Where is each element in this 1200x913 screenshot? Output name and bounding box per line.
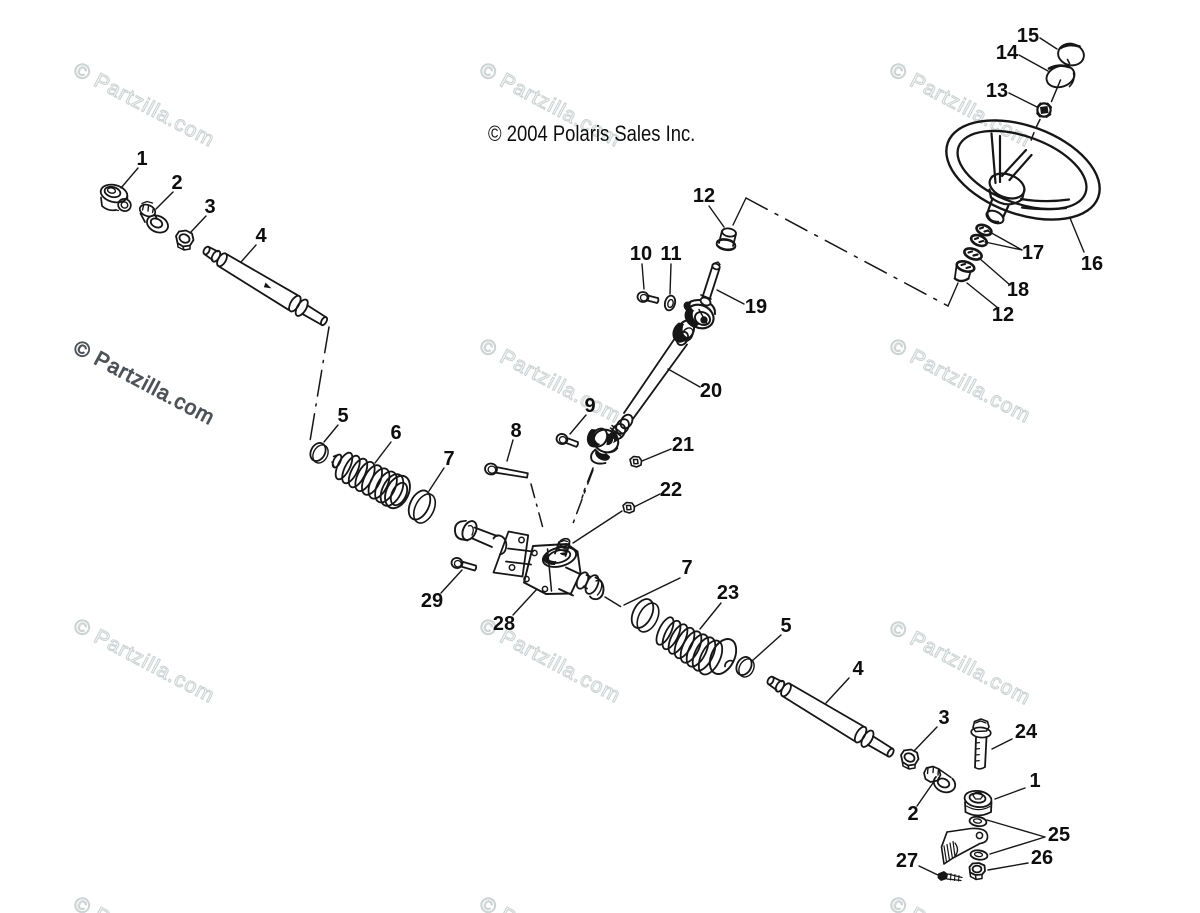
- svg-text:1: 1: [1029, 770, 1040, 792]
- svg-text:21: 21: [672, 434, 694, 456]
- svg-text:5: 5: [337, 405, 348, 427]
- svg-text:26: 26: [1031, 847, 1053, 869]
- svg-text:3: 3: [204, 196, 215, 218]
- svg-text:24: 24: [1015, 721, 1038, 743]
- svg-text:10: 10: [630, 243, 652, 265]
- svg-text:19: 19: [745, 296, 767, 318]
- svg-text:1: 1: [136, 148, 147, 170]
- svg-text:5: 5: [780, 615, 791, 637]
- svg-text:25: 25: [1048, 824, 1070, 846]
- svg-text:© 2004 Polaris Sales Inc.: © 2004 Polaris Sales Inc.: [488, 121, 695, 146]
- svg-text:18: 18: [1007, 279, 1029, 301]
- svg-text:27: 27: [896, 850, 918, 872]
- svg-text:2: 2: [171, 172, 182, 194]
- svg-text:28: 28: [493, 613, 515, 635]
- svg-text:8: 8: [510, 420, 521, 442]
- svg-text:7: 7: [443, 448, 454, 470]
- svg-text:29: 29: [421, 590, 443, 612]
- svg-text:16: 16: [1081, 253, 1103, 275]
- svg-text:9: 9: [584, 395, 595, 417]
- svg-text:17: 17: [1022, 242, 1044, 264]
- svg-text:13: 13: [986, 80, 1008, 102]
- svg-text:12: 12: [693, 185, 715, 207]
- svg-text:11: 11: [660, 243, 681, 265]
- svg-text:20: 20: [700, 380, 722, 402]
- svg-text:4: 4: [852, 658, 864, 680]
- svg-text:6: 6: [390, 422, 401, 444]
- svg-text:23: 23: [717, 582, 739, 604]
- svg-text:15: 15: [1017, 25, 1039, 47]
- svg-text:14: 14: [996, 42, 1019, 64]
- svg-text:22: 22: [660, 479, 682, 501]
- svg-text:7: 7: [681, 557, 692, 579]
- svg-text:3: 3: [938, 707, 949, 729]
- svg-text:4: 4: [255, 225, 267, 247]
- svg-text:12: 12: [992, 304, 1014, 326]
